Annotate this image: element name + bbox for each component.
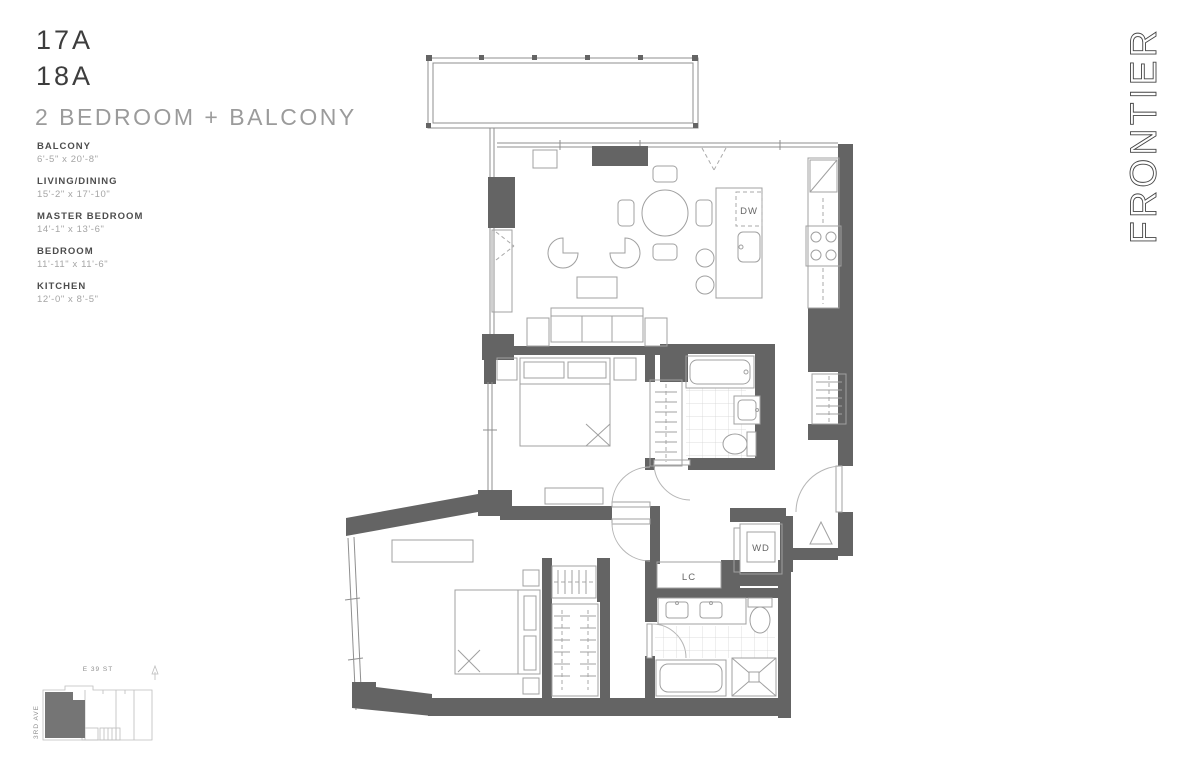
room-spec-list: BALCONY 6'-5" x 20'-8" LIVING/DINING 15'…	[37, 141, 143, 316]
shower	[732, 658, 776, 696]
walls	[345, 128, 853, 718]
toilet	[723, 432, 756, 456]
spec-master-bedroom: MASTER BEDROOM 14'-1" x 13'-6"	[37, 211, 143, 235]
dining-chair	[653, 244, 677, 260]
balcony	[426, 55, 698, 128]
kitchen-counter	[806, 158, 841, 308]
washer-dryer-label: WD	[752, 543, 770, 554]
laundry-closet: WD	[734, 524, 782, 574]
nightstand	[523, 678, 539, 694]
building-footprint	[43, 686, 152, 740]
stool	[696, 249, 714, 267]
dining-chair	[696, 200, 712, 226]
spec-living-dining: LIVING/DINING 15'-2" x 17'-10"	[37, 176, 143, 200]
side-table	[645, 318, 667, 346]
closet-2a	[552, 566, 596, 598]
dining-chair	[653, 166, 677, 182]
master-closet	[650, 380, 682, 466]
brand-logo: FRONTIER	[1108, 18, 1188, 248]
coffee-table	[577, 277, 617, 298]
dresser	[545, 488, 603, 504]
master-bedroom	[497, 358, 682, 504]
bedroom-2	[392, 540, 598, 696]
living-dining	[527, 150, 712, 346]
toilet-2	[748, 598, 772, 633]
side-table	[527, 318, 549, 346]
bathtub	[686, 356, 754, 388]
spec-kitchen: KITCHEN 12'-0" x 8'-5"	[37, 281, 143, 305]
sofa	[551, 308, 643, 342]
keyplan-street-left: 3RD AVE	[33, 705, 40, 739]
range	[806, 226, 841, 266]
building-core	[82, 728, 120, 740]
bathroom-sink	[734, 396, 760, 424]
nightstand	[523, 570, 539, 586]
walk-in-closet	[552, 604, 598, 696]
bathtub-2	[656, 660, 726, 696]
island-sink	[738, 232, 760, 262]
floorplan-page: 17A 18A 2 BEDROOM + BALCONY BALCONY 6'-5…	[0, 0, 1200, 776]
keyplan-street-top: E 39 ST	[83, 666, 113, 673]
nightstand	[614, 358, 636, 380]
keyplan: E 39 ST 3RD AVE	[28, 650, 198, 760]
entry-door-leaf	[836, 466, 842, 512]
dresser-2	[392, 540, 473, 562]
unit-numbers: 17A 18A	[36, 22, 93, 94]
bed-2	[455, 590, 540, 674]
spec-bedroom: BEDROOM 11'-11" x 11'-6"	[37, 246, 143, 270]
unit-location-highlight	[45, 692, 85, 738]
entry-marker-triangle	[810, 522, 832, 544]
master-bed	[520, 358, 610, 446]
dining-chair	[618, 200, 634, 226]
unit-number-17a: 17A	[36, 22, 93, 58]
dishwasher-label: DW	[740, 206, 758, 217]
dining-table	[642, 190, 688, 236]
linen-closet-label: LC	[682, 572, 696, 583]
unit-number-18a: 18A	[36, 58, 93, 94]
nightstand	[497, 358, 517, 380]
stool	[696, 276, 714, 294]
faucet	[739, 245, 743, 249]
bathroom-2	[655, 598, 776, 696]
brand-logo-text: FRONTIER	[1123, 27, 1164, 244]
spec-balcony: BALCONY 6'-5" x 20'-8"	[37, 141, 143, 165]
north-arrow	[152, 666, 158, 680]
kitchen-island: DW	[716, 188, 762, 298]
accent-chair	[610, 238, 640, 268]
linen-closet: LC	[657, 562, 721, 588]
accent-chair	[548, 238, 578, 268]
floorplan-drawing: DW	[340, 40, 870, 740]
master-bathroom	[686, 356, 760, 458]
wall-unit	[533, 150, 557, 168]
page-title: 2 BEDROOM + BALCONY	[35, 104, 357, 131]
double-vanity	[658, 598, 746, 624]
